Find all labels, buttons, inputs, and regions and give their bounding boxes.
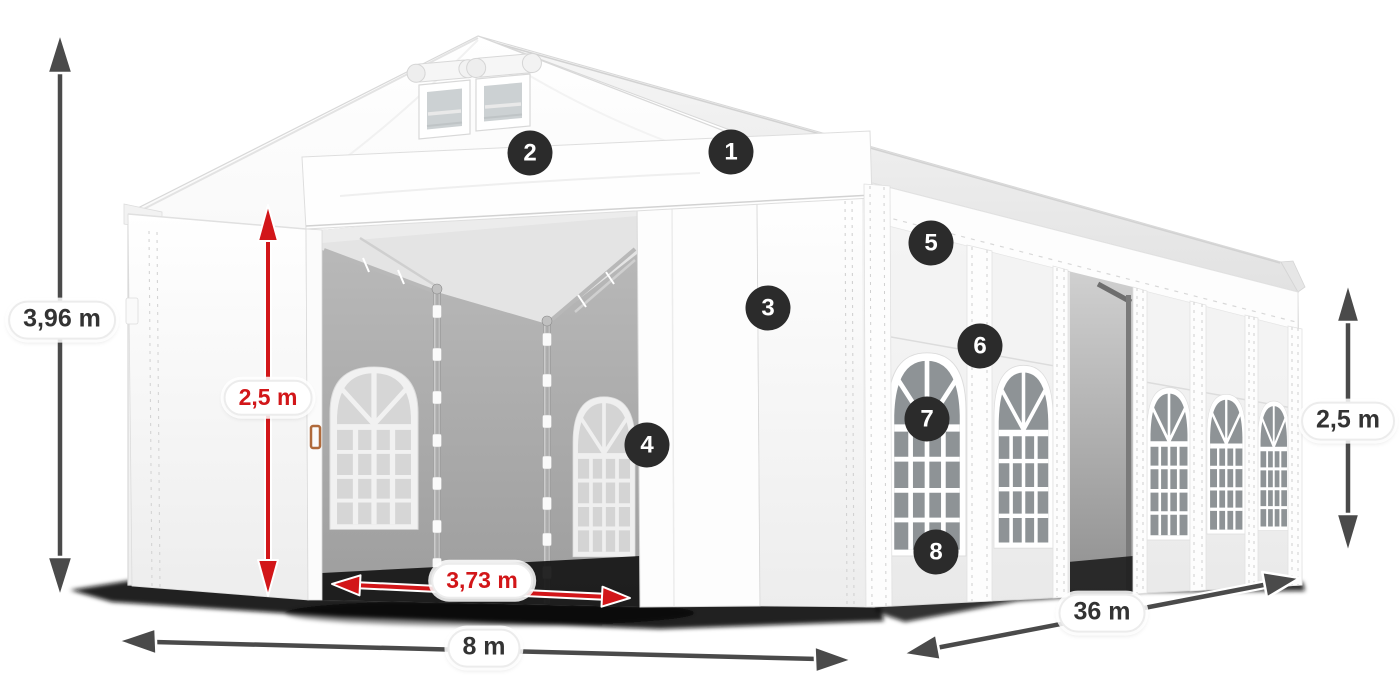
interior-mesh-window-left [330,367,418,530]
tent-illustration [0,0,1400,700]
side-door-opening [1068,271,1133,597]
front-door-opening [322,202,640,607]
feature-marker-4: 4 [625,423,670,468]
door-width-label: 3,73 m [431,563,533,599]
vent-right [476,74,530,131]
feature-marker-3: 3 [746,286,791,331]
side-height-label: 2,5 m [1301,402,1395,441]
feature-marker-6: 6 [958,324,1003,369]
right-door-panel [637,196,760,607]
feature-marker-5: 5 [909,221,954,266]
feature-marker-1: 1 [709,130,754,175]
front-right-wall [757,190,874,607]
total-height-label: 3,96 m [8,301,116,340]
tent-diagram: 3,96 m 2,5 m 3,73 m 8 m 36 m 2,5 m 1 2 3… [0,0,1400,700]
left-door-panel [306,229,322,600]
side-window-3 [1147,388,1191,540]
feature-marker-2: 2 [508,131,553,176]
side-window-1 [888,353,966,556]
door-height-label: 2,5 m [224,380,313,416]
length-label: 36 m [1059,594,1146,633]
side-window-2 [994,365,1053,548]
interior-mesh-window-right [573,397,635,557]
corner-strap [864,184,892,607]
feature-marker-8: 8 [914,530,959,575]
vent-left [419,80,470,139]
side-window-4 [1207,394,1246,534]
front-width-label: 8 m [447,629,520,668]
feature-marker-7: 7 [905,397,950,442]
side-window-5 [1258,401,1290,531]
